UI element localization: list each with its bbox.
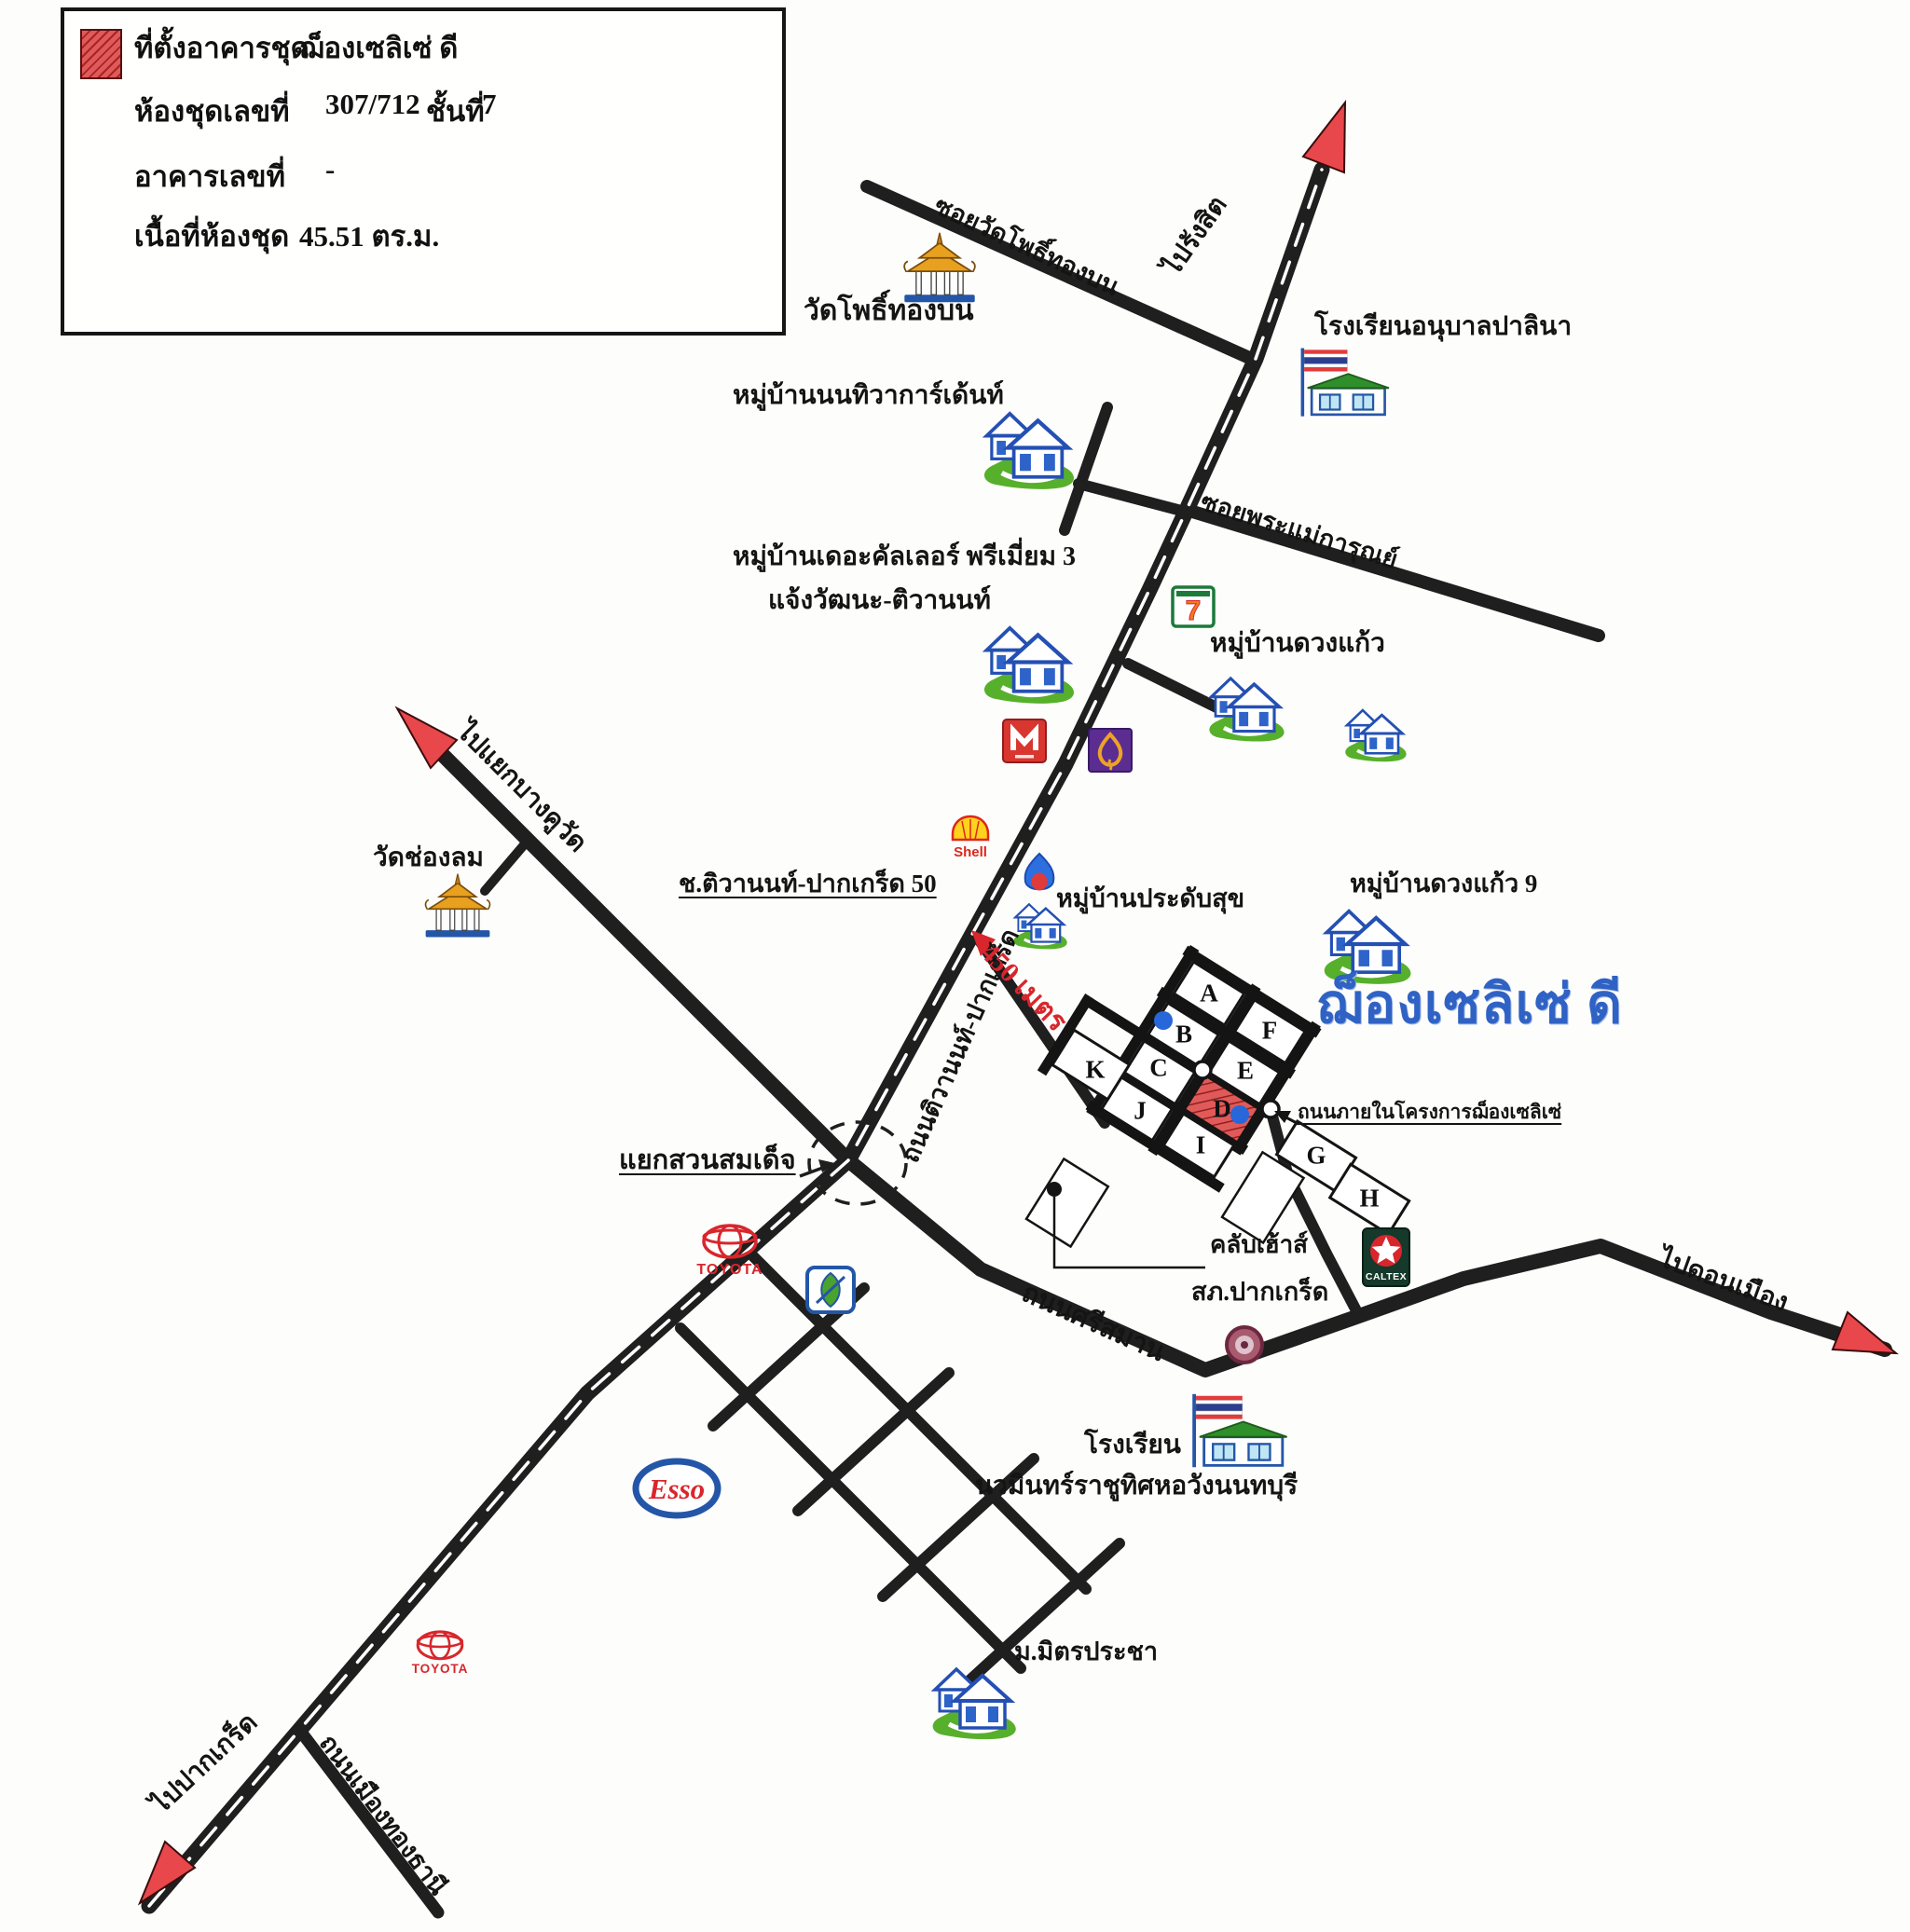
seven-eleven-icon: 7 [1173, 587, 1214, 626]
clubhouse-dot [1047, 1182, 1062, 1197]
legend-value-3: - [325, 153, 335, 186]
block-letter-b: B [1175, 1021, 1192, 1049]
label-duang-kaew-9: หมู่บ้านดวงแก้ว 9 [1350, 870, 1537, 897]
legend-label-2: ห้องชุดเลขที่ [134, 88, 290, 134]
block-letter-f: F [1262, 1017, 1278, 1046]
block-letter-a: A [1200, 980, 1218, 1008]
clubhouse-block-west [1026, 1158, 1108, 1246]
temple-icon [425, 874, 489, 938]
svg-text:Esso: Esso [648, 1473, 705, 1505]
road-nonthiwa-tick [1079, 484, 1185, 512]
map-icons: Shell 7 TOYOTA [412, 233, 1411, 1739]
label-police: สภ.ปากเกร็ด [1191, 1279, 1328, 1305]
road-nonthiwa-branch [1065, 407, 1107, 530]
shell-gas-icon: Shell [953, 816, 988, 860]
road-duangkaew-branch [1128, 664, 1218, 708]
legend-label-4: เนื้อที่ห้องชุด [134, 212, 289, 259]
label-soi-tiwanon-50: ช.ติวานนท์-ปากเกร็ด 50 [679, 870, 937, 897]
label-nonthiwa-garden: หมู่บ้านนนทิวาการ์เด้นท์ [733, 382, 1004, 409]
project-name: ฌ็องเซลิเซ่ ดี [1316, 977, 1623, 1034]
house-icon [1345, 710, 1406, 761]
block-letter-g: G [1306, 1142, 1326, 1171]
label-colour-premium-2: แจ้งวัฒนะ-ติวานนท์ [768, 587, 991, 614]
legend-value-1: ฌ็องเซลิเซ่ ดี [299, 24, 458, 71]
label-internal-road: ถนนภายในโครงการฌ็องเซลิเซ่ [1298, 1102, 1561, 1122]
label-pradab-suk: หมู่บ้านประดับสุข [1056, 885, 1244, 911]
temple-icon [904, 233, 975, 303]
block-letter-j: J [1134, 1097, 1147, 1126]
ptt-gas-icon [1025, 854, 1054, 891]
road-bang-khu-wat [418, 730, 848, 1160]
bangchak-icon [807, 1267, 854, 1312]
svg-text:TOYOTA: TOYOTA [696, 1262, 763, 1278]
block-letter-h: H [1359, 1185, 1379, 1213]
esso-icon: Esso [636, 1461, 718, 1515]
cinema-m-icon [1003, 719, 1046, 762]
label-wat-chong-lom: วัดช่องลม [373, 844, 484, 871]
road-chonglom-spur [485, 841, 528, 891]
caltex-icon: CALTEX [1363, 1228, 1409, 1286]
block-letter-k: K [1085, 1056, 1105, 1085]
label-school-1: โรงเรียน [1084, 1432, 1181, 1459]
svg-text:TOYOTA: TOYOTA [412, 1662, 468, 1676]
legend-value-4: 45.51 ตร.ม. [299, 212, 439, 259]
legend-box: ที่ตั้งอาคารชุด ฌ็องเซลิเซ่ ดี ห้องชุดเล… [61, 7, 786, 336]
label-mit-pracha: ม.มิตรประชา [1014, 1638, 1158, 1665]
red-hatched-square-icon [80, 29, 122, 79]
school-flag-icon [1301, 349, 1389, 417]
svg-text:Shell: Shell [954, 844, 987, 860]
svg-text:7: 7 [1186, 596, 1202, 626]
blue-dot-b [1154, 1011, 1173, 1030]
label-anuban-palina: โรงเรียนอนุบาลปาลินา [1314, 313, 1572, 340]
label-duang-kaew: หมู่บ้านดวงแก้ว [1210, 630, 1385, 657]
house-icon [1209, 678, 1284, 742]
clubhouse-block-east [1222, 1152, 1304, 1242]
road-mueang-thong [300, 1731, 438, 1912]
label-colour-premium-1: หมู่บ้านเดอะคัลเลอร์ พรีเมี่ยม 3 [733, 543, 1076, 570]
label-school-2: นวมินทร์ราชูทิศหอวังนนทบุรี [975, 1473, 1298, 1500]
map-page: Shell 7 TOYOTA [0, 0, 1910, 1932]
house-icon [984, 628, 1074, 704]
legend-label-3: อาคารเลขที่ [134, 153, 285, 199]
svg-text:CALTEX: CALTEX [1366, 1271, 1407, 1282]
label-wat-pho-thong-bon: วัดโพธิ์ทองบน [804, 296, 974, 326]
legend-value-2: 307/712 [325, 88, 420, 121]
legend-label-2b: ชั้นที่ [426, 88, 485, 134]
label-clubhouse: คลับเฮ้าส์ [1210, 1232, 1308, 1257]
blue-dot-d [1230, 1105, 1249, 1124]
block-letter-e: E [1237, 1057, 1254, 1086]
block-letter-d: D [1213, 1095, 1231, 1124]
lotus-leaf-icon [1089, 729, 1132, 772]
block-letter-c: C [1149, 1054, 1168, 1083]
label-suan-somdet: แยกสวนสมเด็จ [619, 1146, 796, 1174]
police-badge-icon [1227, 1327, 1262, 1363]
arrow-to-don-mueang [1833, 1312, 1896, 1353]
house-icon [984, 414, 1074, 489]
block-letter-i: I [1196, 1131, 1206, 1160]
legend-value-2b: 7 [482, 88, 497, 121]
legend-label-1: ที่ตั้งอาคารชุด [134, 24, 309, 71]
toyota-icon: TOYOTA [412, 1632, 468, 1676]
school-flag-icon [1192, 1394, 1286, 1467]
arrow-to-rangsit [1303, 103, 1345, 172]
